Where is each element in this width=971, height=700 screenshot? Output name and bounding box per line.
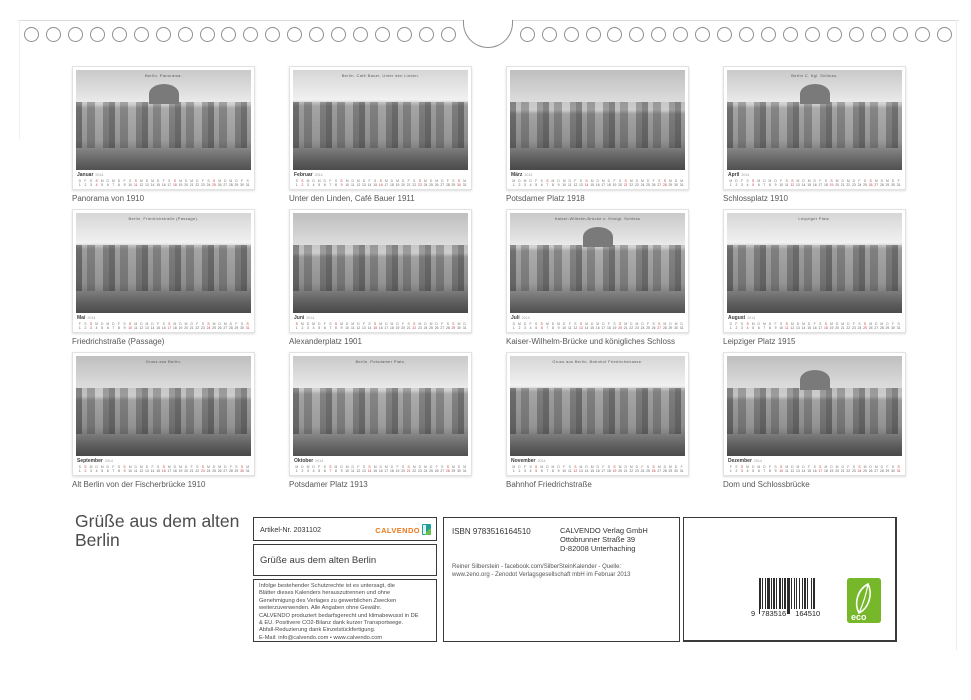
month-name: Februar [294, 172, 313, 178]
calendar-strip: M1D2M3D4F5S6S7M8D9M10D11F12S13S14M15D16M… [511, 180, 685, 188]
photo-caption-overlay: Gruss aus Berlin. Bahnhof Friedrichstras… [510, 359, 685, 364]
barcode-box: 9 783516 164510 eco [683, 517, 897, 642]
binding-hole [46, 27, 61, 42]
calendar-strip: S1M2D3M4D5F6S7S8M9D10M11D12F13S14S15M16D… [294, 323, 468, 331]
calendar-day: S31 [896, 466, 902, 474]
calendar-day: M31 [245, 466, 251, 474]
month-caption: Potsdamer Platz 1913 [289, 480, 472, 489]
calendar-day: S31 [245, 180, 251, 188]
month-year: 2014 [105, 459, 113, 463]
binding-hole [783, 27, 798, 42]
month-year: 2014 [741, 173, 749, 177]
month-name: Mai [77, 315, 85, 321]
barcode-digits: 9 783516 164510 [750, 609, 842, 618]
calendar-strip: M1D2M3D4F5S6S7M8D9M10D11F12S13S14M15D16M… [294, 466, 468, 474]
month-cell: Berlin C. Kgl. Schloss. April 2014 M1D2F… [723, 66, 906, 202]
mini-calendar-page: Berlin. Friedrichstraße (Passage). Mai 2… [72, 209, 255, 333]
calendar-day: S31 [896, 323, 902, 331]
mini-calendar-page: Gruss aus Berlin. Bahnhof Friedrichstras… [506, 352, 689, 476]
month-name: April [728, 172, 739, 178]
binding-hole [112, 27, 127, 42]
calendar-day: F31 [896, 180, 902, 188]
binding-hole [761, 27, 776, 42]
calendar-strip: M1D2F3S4S5M6D7M8D9F10S11S12M13D14M15D16F… [728, 180, 902, 188]
month-caption: Kaiser-Wilhelm-Brücke und königliches Sc… [506, 337, 689, 346]
month-cell: Dezember 2014 F1S2S3M4D5M6D7F8S9S10M11D1… [723, 352, 906, 488]
month-label-row: Dezember 2014 [728, 458, 901, 465]
info-box: Artikel-Nr. 2031102 CALVENDO Grüße aus d… [253, 517, 437, 642]
calendar-day: D31 [679, 323, 685, 331]
month-year: 2014 [537, 459, 545, 463]
binding-hole [221, 27, 236, 42]
barcode-digit-group: 783516 [760, 609, 787, 618]
barcode-digit-group: 164510 [794, 609, 821, 618]
binding-hole [243, 27, 258, 42]
binding-hole [309, 27, 324, 42]
calendar-strip: D1F2S3S4M5D6M7D8F9S10S11M12D13M14D15F16S… [728, 323, 902, 331]
eco-logo: eco [847, 578, 881, 623]
month-name: März [511, 172, 522, 178]
calendar-back-page: { "title": { "lines": "Grüße aus dem alt… [0, 0, 971, 700]
month-photo [293, 213, 468, 313]
month-caption: Panorama von 1910 [72, 194, 255, 203]
month-photo: Berlin. Potsdamer Platz. [293, 356, 468, 456]
mini-calendar-page: Dezember 2014 F1S2S3M4D5M6D7F8S9S10M11D1… [723, 352, 906, 476]
month-name: Oktober [294, 458, 313, 464]
binding-hole [629, 27, 644, 42]
ean-barcode: 9 783516 164510 [750, 578, 842, 626]
page-title: Grüße aus dem alten Berlin [75, 512, 239, 550]
month-caption: Alt Berlin von der Fischerbrücke 1910 [72, 480, 255, 489]
month-photo [727, 356, 902, 456]
binding-hole [607, 27, 622, 42]
mini-calendar-page: Berlin. Panorama. Januar 2014 D1F2S3S4M5… [72, 66, 255, 190]
binding-hole [893, 27, 908, 42]
month-caption: Potsdamer Platz 1918 [506, 194, 689, 203]
month-name: Januar [77, 172, 93, 178]
month-name: Dezember [728, 458, 752, 464]
calendar-day: F31 [679, 466, 685, 474]
mini-calendar-page: Berlin. Café Bauer, Unter den Linden. Fe… [289, 66, 472, 190]
binding-hole [673, 27, 688, 42]
photo-caption-overlay: Berlin. Panorama. [76, 73, 251, 78]
mini-calendar-page: Berlin C. Kgl. Schloss. April 2014 M1D2F… [723, 66, 906, 190]
binding-hole [419, 27, 434, 42]
binding-hole [651, 27, 666, 42]
product-title: Grüße aus dem alten Berlin [260, 555, 376, 566]
eco-leaf-icon: eco [847, 578, 881, 623]
binding-hole [542, 27, 557, 42]
binding-hole [265, 27, 280, 42]
binding-hole [564, 27, 579, 42]
month-year: 2014 [315, 459, 323, 463]
binding-hole [156, 27, 171, 42]
calendar-day: D31 [462, 323, 468, 331]
binding-hole [937, 27, 952, 42]
month-year: 2014 [524, 173, 532, 177]
calendar-strip: S1S2M3D4M5D6F7S8S9M10D11M12D13F14S15S16M… [294, 180, 468, 188]
month-cell: März 2014 M1D2M3D4F5S6S7M8D9M10D11F12S13… [506, 66, 689, 202]
page-right-edge [956, 20, 957, 650]
month-label-row: August 2014 [728, 315, 901, 322]
month-year: 2014 [95, 173, 103, 177]
month-cell: Juni 2014 S1M2D3M4D5F6S7S8M9D10M11D12F13… [289, 209, 472, 345]
photo-caption-overlay: Leipziger Platz. [727, 216, 902, 221]
calvendo-logo-icon [422, 524, 431, 535]
calvendo-logo-word: CALVENDO [375, 526, 420, 535]
photo-caption-overlay: Berlin. Potsdamer Platz. [293, 359, 468, 364]
calendar-day: M31 [462, 180, 468, 188]
binding-hole [90, 27, 105, 42]
dome-silhouette [149, 84, 179, 104]
month-caption: Unter den Linden, Café Bauer 1911 [289, 194, 472, 203]
binding-hole [287, 27, 302, 42]
svg-text:eco: eco [851, 612, 867, 622]
month-label-row: April 2014 [728, 172, 901, 179]
month-photo: Kaiser-Wilhelm-Brücke u. Königl. Schloss [510, 213, 685, 313]
month-label-row: September 2014 [77, 458, 250, 465]
binding-hole [805, 27, 820, 42]
publisher-address: CALVENDO Verlag GmbH Ottobrunner Straße … [560, 527, 648, 554]
month-cell: Gruss aus Berlin. September 2014 S1S2M3D… [72, 352, 255, 488]
month-photo [510, 70, 685, 170]
page-left-edge [19, 20, 20, 140]
month-label-row: Mai 2014 [77, 315, 250, 322]
binding-hole [586, 27, 601, 42]
month-year: 2014 [87, 316, 95, 320]
month-name: Juni [294, 315, 304, 321]
month-year: 2014 [522, 316, 530, 320]
month-year: 2014 [315, 173, 323, 177]
month-caption: Dom und Schlossbrücke [723, 480, 906, 489]
binding-hole [717, 27, 732, 42]
mini-calendar-page: Gruss aus Berlin. September 2014 S1S2M3D… [72, 352, 255, 476]
month-label-row: März 2014 [511, 172, 684, 179]
calendar-day: M31 [679, 180, 685, 188]
calvendo-logo: CALVENDO [375, 520, 431, 538]
month-caption: Alexanderplatz 1901 [289, 337, 472, 346]
article-number-box: Artikel-Nr. 2031102 CALVENDO [253, 517, 437, 541]
binding-hole [375, 27, 390, 42]
photo-caption-overlay: Berlin. Friedrichstraße (Passage). [76, 216, 251, 221]
month-cell: Berlin. Potsdamer Platz. Oktober 2014 M1… [289, 352, 472, 488]
month-caption: Leipziger Platz 1915 [723, 337, 906, 346]
month-photo: Leipziger Platz. [727, 213, 902, 313]
month-name: Juli [511, 315, 520, 321]
calendar-strip: D1M2D3F4S5S6M7D8M9D10F11S12S13M14D15M16D… [511, 323, 685, 331]
binding-hole [739, 27, 754, 42]
product-title-box: Grüße aus dem alten Berlin [253, 544, 437, 576]
publisher-box: ISBN 9783516164510 CALVENDO Verlag GmbH … [443, 517, 680, 642]
month-photo: Berlin. Panorama. [76, 70, 251, 170]
binding-hole [24, 27, 39, 42]
calendar-strip: F1S2S3M4D5M6D7F8S9S10M11D12M13D14F15S16S… [728, 466, 902, 474]
hanger-cutout [463, 20, 513, 48]
photo-caption-overlay: Berlin. Café Bauer, Unter den Linden. [293, 73, 468, 78]
month-photo: Gruss aus Berlin. [76, 356, 251, 456]
isbn: ISBN 9783516164510 [452, 527, 560, 554]
binding-hole [441, 27, 456, 42]
legal-text-box: Infolge bestehender Schutzrechte ist es … [253, 579, 437, 642]
month-photo: Berlin C. Kgl. Schloss. [727, 70, 902, 170]
mini-calendar-page: Berlin. Potsdamer Platz. Oktober 2014 M1… [289, 352, 472, 476]
photo-caption-overlay: Berlin C. Kgl. Schloss. [727, 73, 902, 78]
binding-hole [695, 27, 710, 42]
month-name: August [728, 315, 745, 321]
month-label-row: Juni 2014 [294, 315, 467, 322]
month-cell: Leipziger Platz. August 2014 D1F2S3S4M5D… [723, 209, 906, 345]
dome-silhouette [583, 227, 613, 247]
binding-hole [849, 27, 864, 42]
month-year: 2014 [747, 316, 755, 320]
month-year: 2014 [754, 459, 762, 463]
month-label-row: November 2014 [511, 458, 684, 465]
binding-hole [520, 27, 535, 42]
mini-calendar-page: Juni 2014 S1M2D3M4D5F6S7S8M9D10M11D12F13… [289, 209, 472, 333]
binding-hole [200, 27, 215, 42]
month-cell: Gruss aus Berlin. Bahnhof Friedrichstras… [506, 352, 689, 488]
binding-hole [871, 27, 886, 42]
calendar-strip: M1D2F3S4S5M6D7M8D9F10S11S12M13D14M15D16F… [511, 466, 685, 474]
binding-hole [68, 27, 83, 42]
calendar-day: M31 [462, 466, 468, 474]
month-caption: Friedrichstraße (Passage) [72, 337, 255, 346]
binding-hole [915, 27, 930, 42]
author-credit: Reiner Silberstein - facebook.com/Silber… [452, 563, 671, 579]
dome-silhouette [800, 370, 830, 390]
spiral-binding-holes [24, 20, 952, 48]
dome-silhouette [800, 84, 830, 104]
month-cell: Berlin. Panorama. Januar 2014 D1F2S3S4M5… [72, 66, 255, 202]
article-number: Artikel-Nr. 2031102 [260, 525, 321, 534]
month-name: September [77, 458, 103, 464]
calendar-strip: F1S2S3M4D5M6D7F8S9S10M11D12M13D14F15S16S… [77, 323, 251, 331]
mini-calendar-page: Kaiser-Wilhelm-Brücke u. Königl. Schloss… [506, 209, 689, 333]
month-photo: Gruss aus Berlin. Bahnhof Friedrichstras… [510, 356, 685, 456]
month-label-row: Februar 2014 [294, 172, 467, 179]
month-label-row: Januar 2014 [77, 172, 250, 179]
calendar-strip: S1S2M3D4M5D6F7S8S9M10D11M12D13F14S15S16M… [77, 466, 251, 474]
mini-calendar-page: Leipziger Platz. August 2014 D1F2S3S4M5D… [723, 209, 906, 333]
binding-hole [134, 27, 149, 42]
month-year: 2014 [306, 316, 314, 320]
month-photo: Berlin. Friedrichstraße (Passage). [76, 213, 251, 313]
month-caption: Bahnhof Friedrichstraße [506, 480, 689, 489]
calendar-day: S31 [245, 323, 251, 331]
month-name: November [511, 458, 535, 464]
binding-hole [178, 27, 193, 42]
month-cell: Kaiser-Wilhelm-Brücke u. Königl. Schloss… [506, 209, 689, 345]
calendar-strip: D1F2S3S4M5D6M7D8F9S10S11M12D13M14D15F16S… [77, 180, 251, 188]
binding-hole [397, 27, 412, 42]
binding-hole [827, 27, 842, 42]
month-label-row: Juli 2014 [511, 315, 684, 322]
month-caption: Schlossplatz 1910 [723, 194, 906, 203]
month-photo: Berlin. Café Bauer, Unter den Linden. [293, 70, 468, 170]
photo-caption-overlay: Kaiser-Wilhelm-Brücke u. Königl. Schloss [510, 216, 685, 221]
photo-caption-overlay: Gruss aus Berlin. [76, 359, 251, 364]
mini-calendar-page: März 2014 M1D2M3D4F5S6S7M8D9M10D11F12S13… [506, 66, 689, 190]
month-label-row: Oktober 2014 [294, 458, 467, 465]
barcode-digit-group: 9 [750, 609, 756, 618]
binding-hole [353, 27, 368, 42]
month-cell: Berlin. Friedrichstraße (Passage). Mai 2… [72, 209, 255, 345]
binding-hole [331, 27, 346, 42]
months-grid: Berlin. Panorama. Januar 2014 D1F2S3S4M5… [72, 66, 906, 488]
month-cell: Berlin. Café Bauer, Unter den Linden. Fe… [289, 66, 472, 202]
